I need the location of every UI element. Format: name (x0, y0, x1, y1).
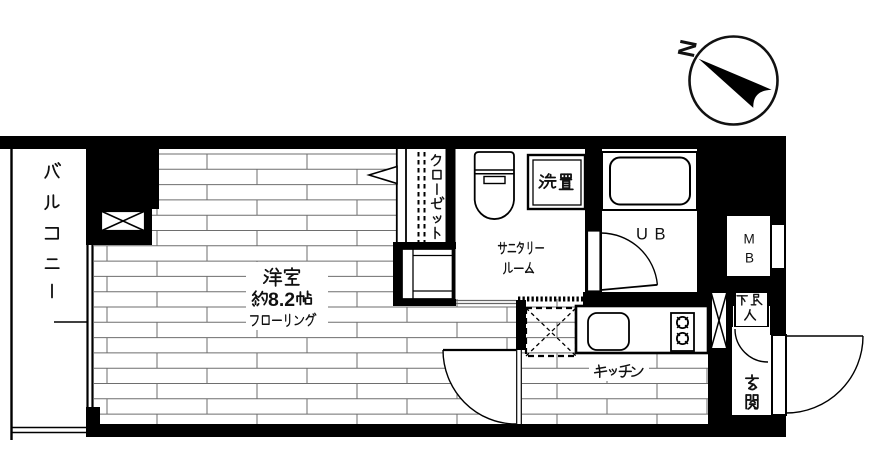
svg-text:U: U (636, 226, 648, 244)
svg-text:B: B (655, 226, 666, 244)
svg-text:B: B (745, 251, 754, 266)
svg-text:8.2: 8.2 (268, 289, 295, 311)
svg-text:M: M (744, 232, 755, 247)
